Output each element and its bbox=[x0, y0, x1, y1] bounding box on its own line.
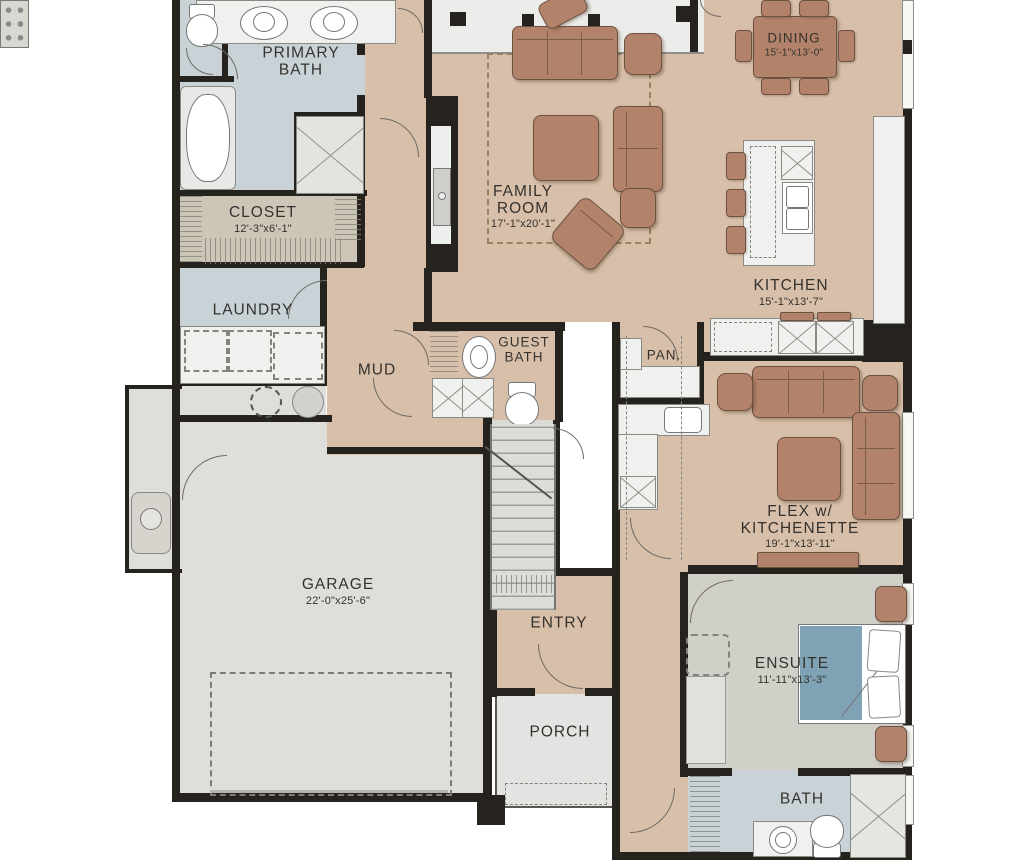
pillow bbox=[867, 675, 901, 719]
ensuite-label: ENSUITE 11'-11"x13'-3" bbox=[755, 656, 829, 686]
wall bbox=[327, 447, 487, 454]
island-cabinet bbox=[781, 146, 813, 180]
wall bbox=[555, 322, 563, 422]
fireplace-knob bbox=[438, 192, 446, 200]
sink-basin bbox=[786, 186, 809, 208]
toilet bbox=[186, 4, 216, 48]
water-softener bbox=[250, 386, 282, 418]
dining-chair bbox=[799, 78, 829, 95]
guest-bath-sink bbox=[470, 345, 488, 369]
base-cabinet bbox=[778, 321, 816, 354]
garage-label: GARAGE 22'-0"x25'-6" bbox=[302, 577, 374, 607]
laundry-cabinet bbox=[273, 332, 323, 380]
dining-chair bbox=[735, 30, 752, 62]
entry-label: ENTRY bbox=[530, 616, 587, 633]
coffee-table bbox=[533, 115, 599, 181]
bar-stool bbox=[726, 226, 746, 254]
armchair bbox=[717, 373, 753, 411]
closet-hanging-rack bbox=[335, 196, 361, 240]
entry-closet-rack bbox=[496, 575, 552, 593]
patio-column bbox=[450, 12, 466, 26]
mud-lockers bbox=[462, 378, 494, 418]
porch-label: PORCH bbox=[530, 725, 591, 742]
toilet bbox=[505, 382, 537, 428]
armchair bbox=[862, 375, 898, 411]
bathtub-basin bbox=[186, 94, 230, 182]
sink-basin bbox=[786, 208, 809, 230]
window bbox=[902, 0, 914, 109]
primary-bath-label: PRIMARY BATH bbox=[262, 45, 339, 78]
mud-label: MUD bbox=[358, 363, 396, 380]
wall bbox=[424, 0, 432, 98]
kitchen-label: KITCHEN 15'-1"x13'-7" bbox=[753, 278, 828, 308]
flex-label: FLEX w/ KITCHENETTE 19'-1"x13'-11" bbox=[741, 504, 860, 550]
dining-label: DINING 15'-1"x13'-0" bbox=[765, 32, 824, 59]
dryer bbox=[228, 330, 272, 372]
shower bbox=[296, 116, 364, 194]
ottoman bbox=[620, 188, 656, 228]
island-cabinet-line bbox=[750, 146, 776, 258]
sink bbox=[323, 12, 345, 32]
closet-hanging-rack bbox=[205, 238, 343, 264]
linen-closet bbox=[690, 776, 720, 852]
porch-steps bbox=[505, 783, 607, 805]
nightstand bbox=[875, 726, 907, 762]
bath-sink bbox=[775, 832, 791, 848]
wall-post bbox=[690, 0, 698, 52]
sink bbox=[253, 12, 275, 32]
shower bbox=[850, 774, 906, 858]
utility-drain bbox=[140, 508, 162, 530]
dining-chair bbox=[761, 0, 791, 17]
window-mullion bbox=[903, 40, 912, 54]
wall bbox=[489, 688, 535, 696]
wall bbox=[172, 0, 180, 800]
counter-wood-top bbox=[780, 312, 814, 321]
bath-label: BATH bbox=[780, 792, 824, 809]
closet-hanging-rack bbox=[180, 196, 202, 262]
dining-chair bbox=[761, 78, 791, 95]
counter-wood-top bbox=[817, 312, 851, 321]
dining-chair bbox=[838, 30, 855, 62]
flex-table bbox=[777, 437, 841, 501]
sofa bbox=[752, 366, 860, 418]
wall bbox=[424, 268, 432, 328]
base-cabinet bbox=[816, 321, 854, 354]
media-console bbox=[757, 552, 859, 568]
patio-column bbox=[676, 6, 690, 22]
loveseat bbox=[613, 106, 663, 192]
sofa bbox=[512, 26, 618, 80]
coat-closet bbox=[430, 328, 458, 372]
bar-stool bbox=[726, 189, 746, 217]
water-heater bbox=[292, 386, 324, 418]
ensuite-closet bbox=[686, 676, 726, 764]
mud-lockers bbox=[432, 378, 464, 418]
floor-plan: PRIMARY BATH CLOSET 12'-3"x6'-1" LAUNDRY… bbox=[0, 0, 1036, 860]
wall bbox=[680, 768, 732, 776]
garage-door-line bbox=[210, 790, 448, 793]
closet-label: CLOSET 12'-3"x6'-1" bbox=[229, 205, 297, 235]
dining-chair bbox=[799, 0, 829, 17]
door-swing bbox=[553, 428, 584, 459]
wall bbox=[612, 572, 620, 860]
washer bbox=[184, 330, 228, 372]
pillow bbox=[867, 629, 902, 673]
counter-dash bbox=[714, 322, 772, 352]
laundry-label: LAUNDRY bbox=[213, 303, 294, 320]
window bbox=[902, 412, 914, 519]
bar-stool bbox=[726, 152, 746, 180]
kitchen-counter-right bbox=[873, 116, 905, 324]
ensuite-bench bbox=[686, 634, 730, 676]
armchair bbox=[624, 33, 662, 75]
vanity-counter bbox=[196, 0, 396, 44]
wall-post bbox=[477, 795, 505, 825]
garage-door-outline bbox=[210, 672, 452, 796]
family-room-label: FAMILY ROOM 17'-1"x20'-1" bbox=[491, 184, 555, 230]
toilet bbox=[812, 814, 844, 858]
range-cooktop bbox=[0, 0, 29, 48]
guest-bath-label: GUEST BATH bbox=[498, 335, 550, 364]
nightstand bbox=[875, 586, 907, 622]
pantry-label: PAN. bbox=[647, 349, 682, 364]
